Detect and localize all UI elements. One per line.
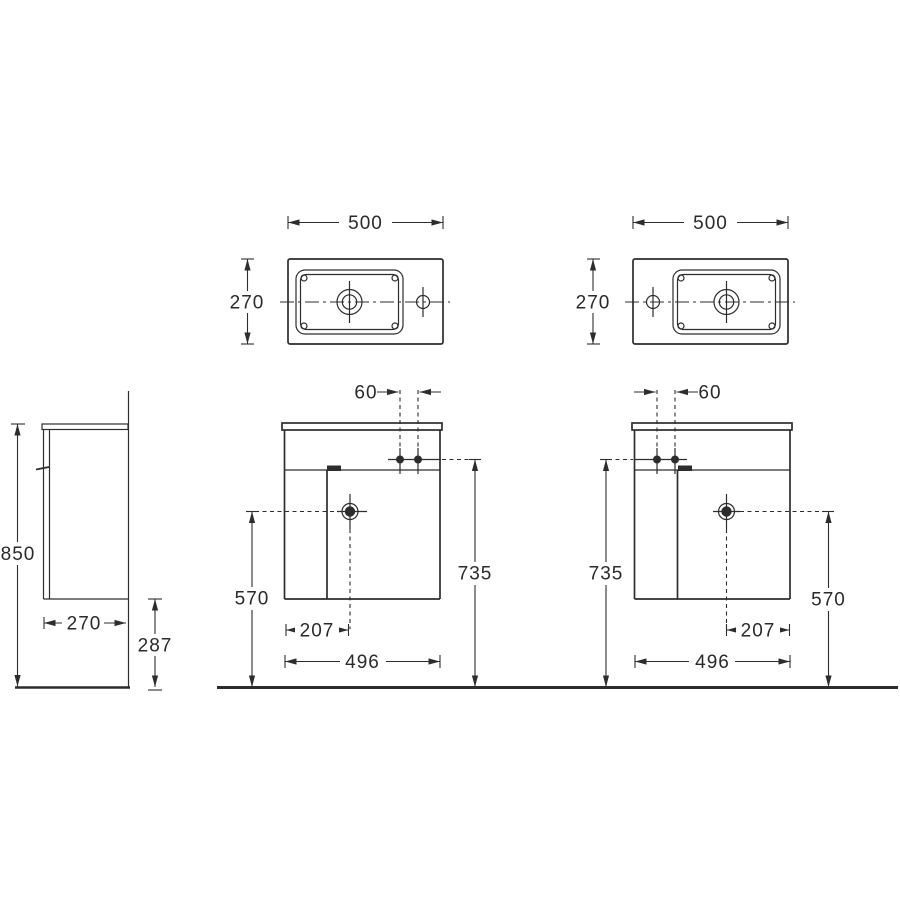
tap-fixing-dot xyxy=(396,456,404,464)
dim-label-tap-spacing: 60 xyxy=(698,383,721,404)
dim-label-width: 496 xyxy=(695,652,730,673)
dim-label-depth: 270 xyxy=(576,293,611,314)
top-right-plan-view: 500 270 xyxy=(573,211,796,344)
dim-label-width: 500 xyxy=(693,213,728,234)
dim-label-clearance: 287 xyxy=(138,636,173,657)
handle-profile xyxy=(36,467,49,470)
rim-corner xyxy=(301,323,307,329)
rim-corner xyxy=(678,323,684,329)
worktop xyxy=(632,423,792,430)
tap-fixing-dot xyxy=(653,456,661,464)
rim-corner xyxy=(769,323,775,329)
rim-corner xyxy=(392,275,398,281)
dim-label-drain-offset: 207 xyxy=(741,621,776,642)
drawing-svg: 500 270 500 xyxy=(0,0,900,898)
dim-label-depth: 270 xyxy=(67,614,102,635)
technical-drawing-canvas: 500 270 500 xyxy=(0,0,900,898)
dim-label-tap-spacing: 60 xyxy=(354,383,377,404)
door-handle xyxy=(327,466,341,472)
dim-label-depth: 270 xyxy=(230,293,265,314)
dim-label-drain-height: 570 xyxy=(811,590,846,611)
rim-corner xyxy=(678,275,684,281)
door-handle xyxy=(678,466,692,472)
dim-label-width: 496 xyxy=(345,652,380,673)
dim-label-width: 500 xyxy=(348,213,383,234)
dim-label-drain-height: 570 xyxy=(235,589,270,610)
rim-corner xyxy=(392,323,398,329)
dim-label-tap-height: 735 xyxy=(458,564,493,585)
front-right-view: 60 735 570 207 496 xyxy=(584,383,850,688)
dim-label-tap-height: 735 xyxy=(589,564,624,585)
top-left-plan-view: 500 270 xyxy=(227,211,450,344)
side-view: 850 270 287 xyxy=(0,391,176,690)
rim-corner xyxy=(769,275,775,281)
rim-corner xyxy=(301,275,307,281)
tap-fixing-dot xyxy=(671,456,679,464)
worktop-profile xyxy=(42,424,128,430)
dim-label-height: 850 xyxy=(1,544,36,565)
tap-fixing-dot xyxy=(414,456,422,464)
front-left-view: 60 570 735 207 496 xyxy=(230,383,497,688)
dim-label-drain-offset: 207 xyxy=(300,621,335,642)
